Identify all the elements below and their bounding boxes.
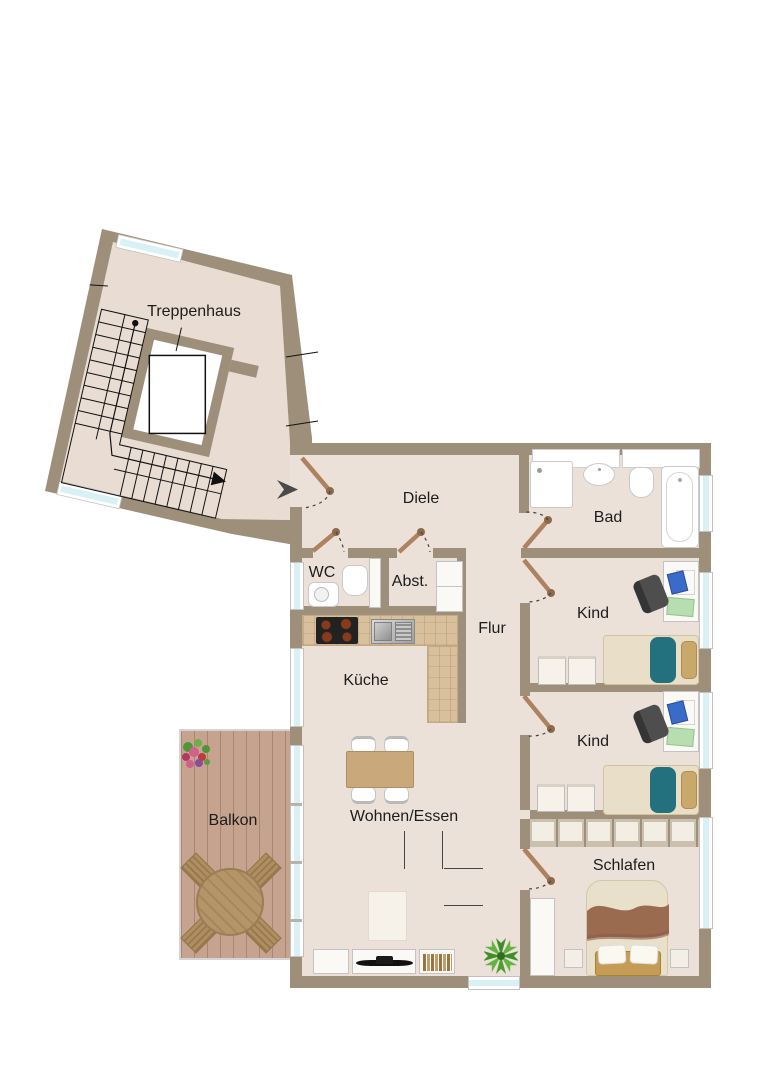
room-label-kind-1: Kind [508,605,678,623]
room-label-balkon: Balkon [148,812,318,830]
door-kind-2 [524,696,555,736]
floor-plan: Treppenhaus Diele Bad WC Abst. Flur Kind… [0,0,764,1080]
room-label-treppenhaus: Treppenhaus [109,303,279,321]
room-label-diele: Diele [336,490,506,508]
room-label-abstellraum: Abst. [325,573,495,591]
room-label-schlafen: Schlafen [539,857,709,875]
room-label-bad: Bad [523,509,693,527]
entrance-arrow-icon [277,480,298,499]
doors-overlay [0,0,764,1080]
door-wc [313,528,344,552]
door-abstellraum [399,528,430,552]
room-label-kind-2: Kind [508,733,678,751]
room-label-wohnen-essen: Wohnen/Essen [319,808,489,826]
room-label-kueche: Küche [281,672,451,690]
door-entrance [302,458,334,508]
door-kind-1 [524,560,555,602]
